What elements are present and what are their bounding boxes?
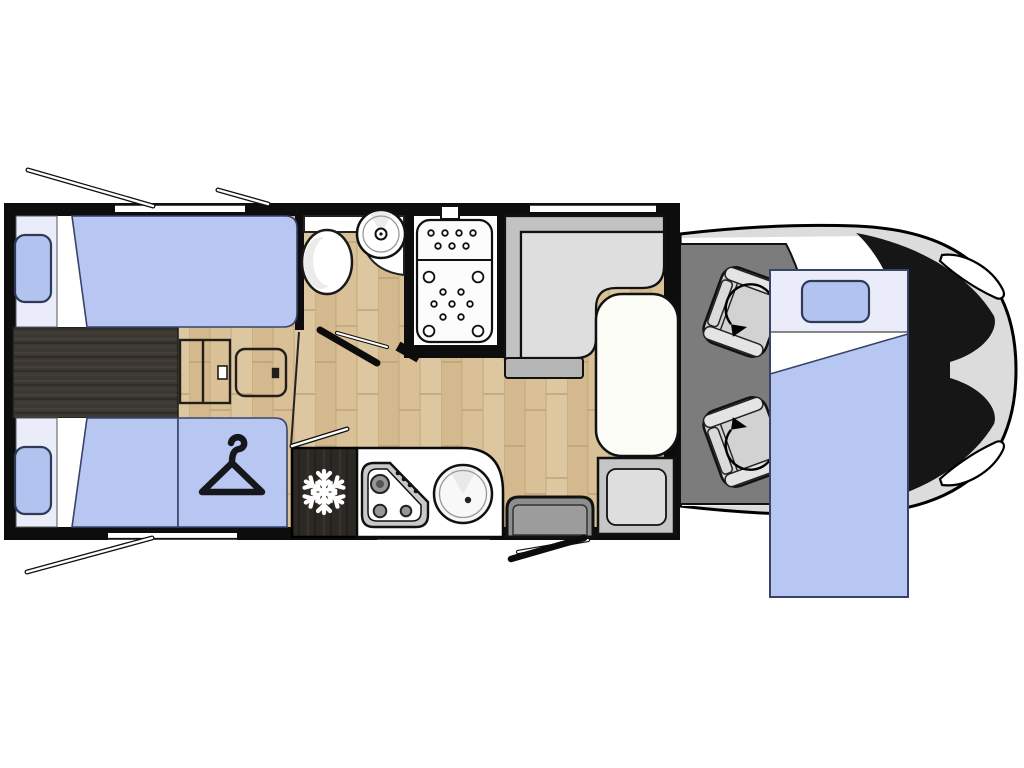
center-walkway [13, 327, 178, 418]
roof-vent [441, 206, 459, 219]
motorhome-floorplan [0, 0, 1024, 768]
entry-step-inner [513, 505, 587, 535]
pillow [15, 447, 51, 514]
drop-down-bed [770, 270, 908, 597]
entry [507, 497, 593, 537]
blanket [770, 334, 908, 597]
toilet [302, 230, 352, 294]
bench-end-cap [505, 358, 583, 378]
shower [414, 206, 497, 345]
hatch-handle [218, 366, 227, 379]
twin-bed-top [15, 216, 297, 327]
pillow [15, 235, 51, 302]
dining-table [596, 294, 678, 456]
kitchen-sink [434, 465, 492, 523]
kitchen [292, 448, 503, 537]
side-seat [598, 458, 674, 534]
washbasin [357, 210, 405, 258]
pillow [802, 281, 869, 322]
hatch-handle [273, 369, 278, 377]
floorplan-canvas [0, 0, 1024, 768]
wardrobe [178, 418, 287, 527]
twin-bed-bottom [15, 418, 287, 527]
mattress [72, 418, 178, 527]
mattress [72, 216, 297, 327]
